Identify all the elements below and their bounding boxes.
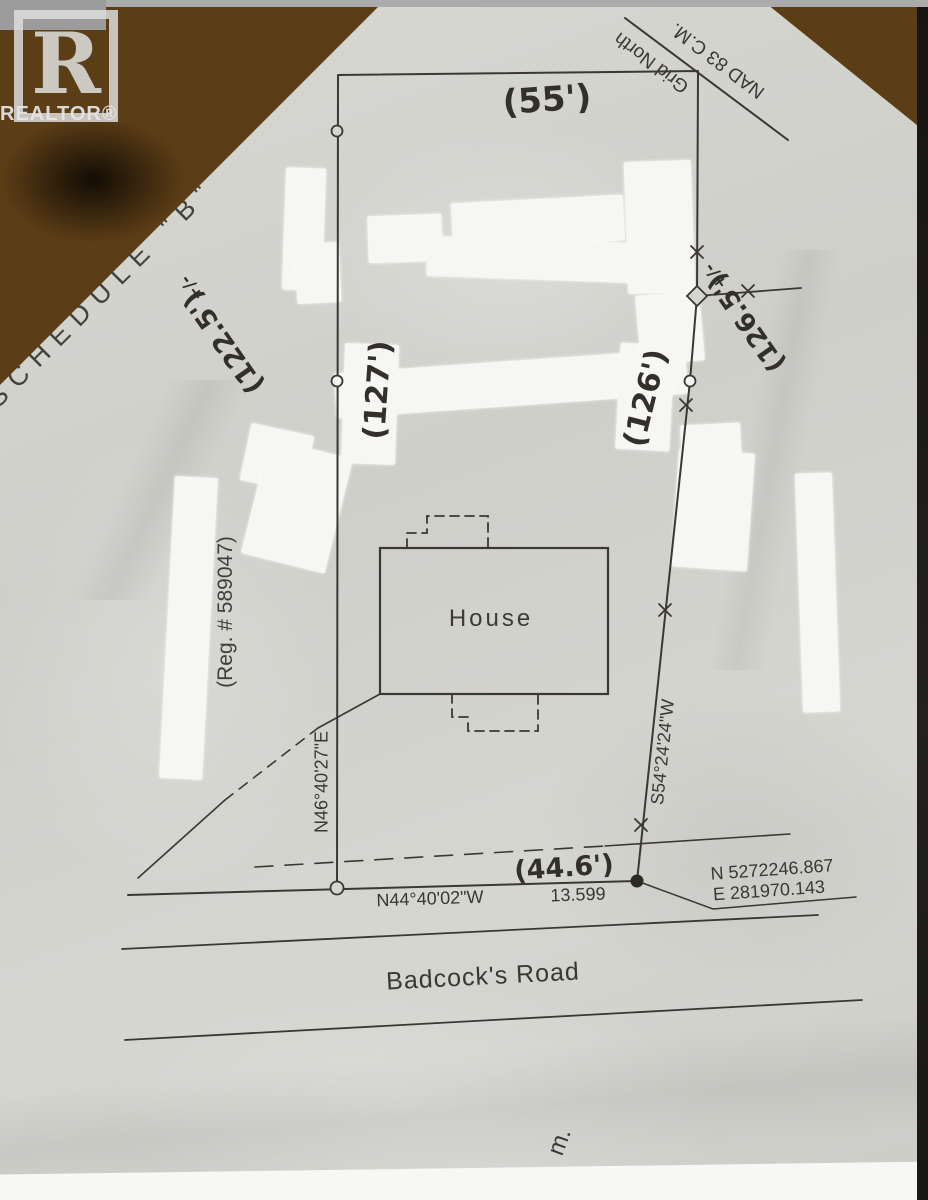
house-deck-dashed bbox=[407, 516, 488, 548]
scan-edge-right bbox=[917, 0, 928, 1200]
monument-circle bbox=[332, 126, 343, 137]
diagonal-tie-line bbox=[138, 800, 225, 878]
diagonal-tie-line bbox=[318, 694, 380, 728]
monument-circle bbox=[685, 376, 696, 387]
grid-north-line bbox=[625, 18, 788, 140]
realtor-logo: R REALTOR® bbox=[0, 0, 140, 150]
front-bearing-label: N44°40'02"W bbox=[376, 887, 484, 912]
offset-line bbox=[605, 834, 790, 846]
house-steps-dashed bbox=[452, 694, 538, 731]
monument-dot bbox=[631, 875, 644, 888]
scanned-survey-plan: SCHEDULE "B" Grid North NAD 83 C.M. (55'… bbox=[0, 0, 928, 1200]
diagonal-tie-line-dashed bbox=[225, 728, 318, 800]
monument-circle bbox=[331, 882, 344, 895]
front-distance-label: 13.599 bbox=[550, 884, 606, 907]
monument-circle bbox=[332, 376, 343, 387]
registration-number: (Reg. # 589047) bbox=[214, 536, 238, 688]
rear-dimension-handwritten: (55') bbox=[501, 77, 592, 123]
road-edge-lower bbox=[125, 1000, 862, 1040]
lot-boundary bbox=[337, 71, 698, 888]
road-edge-upper bbox=[122, 915, 818, 949]
monument-diamond bbox=[687, 286, 707, 306]
house-label: House bbox=[449, 605, 533, 633]
left-dimension-handwritten: (127') bbox=[357, 339, 399, 440]
left-bearing-label: N46°40'27"E bbox=[312, 731, 333, 833]
realtor-r-icon: R bbox=[31, 22, 101, 106]
realtor-wordmark: REALTOR® bbox=[0, 103, 124, 126]
